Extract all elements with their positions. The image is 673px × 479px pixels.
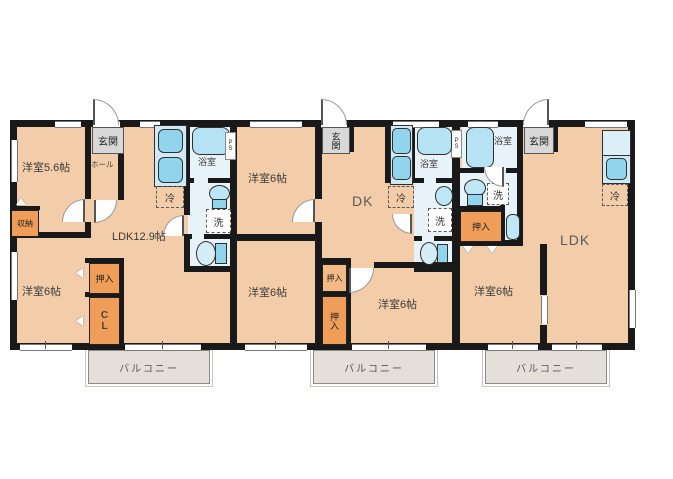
u1-ps: PS (225, 132, 236, 160)
window-tick (388, 341, 389, 349)
u1-washbasin-base (212, 199, 227, 209)
u1-room1-label: 洋室5.6帖 (22, 163, 70, 175)
u3-oshiire-label: 押入 (472, 220, 490, 233)
sliding-door-mark (76, 268, 83, 278)
wall-segment (540, 244, 547, 295)
wall-segment (506, 168, 518, 173)
u1-entry: 玄関 (92, 127, 124, 154)
wall-segment (315, 222, 322, 343)
window (585, 121, 627, 128)
u3-balcony-label: バルコニー (516, 360, 576, 375)
floor-plan: バルコニー バルコニー バルコニー (0, 0, 673, 479)
u1-entry-label: 玄関 (98, 133, 118, 148)
u2-oshiire-lower: 押入 (322, 296, 347, 345)
u1-toilet-bowl (196, 241, 216, 266)
wall-segment (460, 168, 484, 173)
window-tick (275, 341, 276, 349)
u3-fridge-space: 冷 (602, 184, 628, 206)
u1-fridge-label: 冷 (165, 190, 175, 205)
u2-entry: 玄関 (322, 127, 350, 154)
u3-room1-label: 洋室6帖 (474, 287, 513, 299)
u1-ps-label: PS (228, 140, 234, 152)
u1-laundry-space: 洗 (206, 209, 231, 233)
u2-room2-label: 洋室6帖 (248, 288, 287, 300)
u3-living-label: LDK (560, 233, 590, 248)
wall-segment (315, 127, 322, 199)
window (125, 344, 201, 351)
u1-balcony-label: バルコニー (119, 360, 179, 375)
u2-dining-label: DK (352, 194, 373, 209)
u3-entry: 玄関 (524, 127, 554, 154)
u1-fridge-space: 冷 (156, 186, 184, 208)
wall-segment (204, 234, 232, 239)
wall-segment (184, 234, 192, 239)
sliding-door-mark (76, 316, 83, 326)
window (11, 140, 18, 182)
u1-laundry-label: 洗 (214, 214, 224, 229)
wall-segment (436, 178, 452, 183)
u2-entry-label: 玄関 (330, 132, 343, 150)
window-tick (576, 341, 577, 349)
u2-room1-label: 洋室6帖 (248, 174, 287, 186)
u2-bath-label: 浴室 (420, 160, 438, 169)
u3-kitchen-top (602, 130, 631, 156)
u2-kitchen-sink (392, 128, 411, 154)
u3-toilet (506, 214, 520, 240)
u1-hall-label: ホール (91, 161, 114, 169)
u3-balcony: バルコニー (485, 350, 607, 384)
window (20, 344, 72, 351)
sliding-door-gap (541, 296, 548, 324)
u3-fridge-label: 冷 (610, 188, 620, 203)
wall-segment (208, 178, 232, 183)
u1-storage-label: 収納 (17, 218, 33, 229)
wall-segment (184, 266, 235, 272)
u2-bathtub (417, 127, 452, 155)
u2-room3-label: 洋室6帖 (378, 300, 417, 312)
wall-segment (414, 178, 424, 183)
u3-bath-label: 浴室 (494, 137, 512, 146)
u1-oshiire: 押入 (89, 263, 120, 294)
window (250, 121, 302, 128)
window (245, 344, 307, 351)
wall-segment (540, 325, 547, 343)
u2-balcony-label: バルコニー (344, 360, 404, 375)
wall-segment (434, 236, 452, 241)
u3-entry-label: 玄関 (529, 133, 549, 148)
u3-oshiire: 押入 (460, 211, 502, 242)
u1-room2-label: 洋室6帖 (22, 287, 61, 299)
wall-segment (237, 234, 315, 241)
u1-kitchen-stove (158, 157, 183, 183)
wall-segment (414, 236, 422, 241)
u2-laundry-space: 洗 (428, 208, 452, 232)
sliding-door-mark (16, 198, 26, 205)
u1-bath-label: 浴室 (198, 158, 216, 167)
u1-oshiire-label: 押入 (95, 272, 113, 285)
window (11, 252, 18, 300)
sliding-door-mark (463, 246, 473, 253)
u1-cl: CL (89, 297, 120, 345)
u2-entrance-door-arc (321, 99, 347, 125)
u1-living-label: LDK12.9帖 (112, 232, 166, 244)
u2-kitchen-stove (392, 156, 411, 180)
window (352, 344, 426, 351)
u2-oshiire-upper-label: 押入 (327, 273, 343, 284)
u1-balcony: バルコニー (88, 350, 210, 384)
u3-laundry-label: 洗 (493, 187, 503, 202)
u2-toilet-tank (437, 244, 448, 263)
u1-kitchen-sink (158, 129, 183, 153)
u3-washbasin-base (467, 194, 483, 206)
u2-toilet-bowl (420, 242, 438, 265)
u2-oshiire-upper: 押入 (322, 264, 347, 292)
window (552, 344, 602, 351)
u2-laundry-label: 洗 (435, 213, 445, 228)
u2-ps: PS (451, 130, 462, 158)
u2-washbasin (435, 186, 453, 206)
u2-balcony: バルコニー (313, 350, 435, 384)
u2-oshiire-lower-label: 押入 (328, 312, 341, 330)
window (55, 121, 81, 128)
u1-cl-label: CL (99, 310, 110, 332)
window-tick (45, 341, 46, 349)
window-tick (162, 341, 163, 349)
window (629, 290, 636, 328)
u3-entrance-door-arc (523, 99, 549, 125)
u2-fridge-label: 冷 (396, 190, 406, 205)
window-tick (512, 341, 513, 349)
u1-toilet-tank (215, 243, 227, 264)
u1-storage: 収納 (11, 210, 39, 237)
u3-kitchen-sink (606, 158, 627, 180)
u2-ps-label: PS (454, 138, 460, 150)
u1-entrance-door-arc (93, 99, 119, 125)
sliding-door-mark (487, 246, 497, 253)
u2-fridge-space: 冷 (388, 186, 414, 208)
u3-bathtub (466, 127, 494, 168)
window (488, 344, 538, 351)
